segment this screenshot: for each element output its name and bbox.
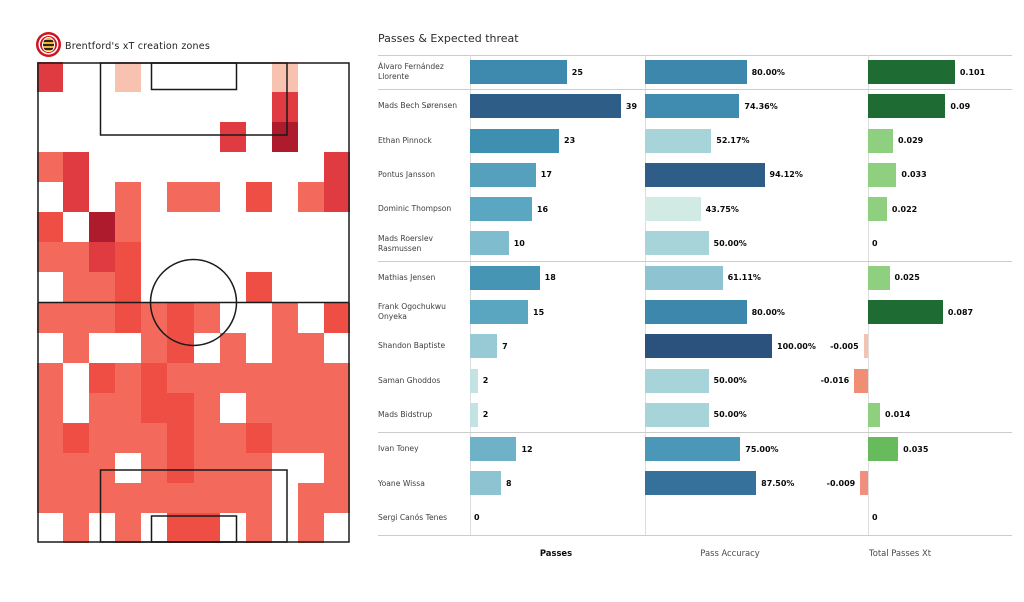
xt-value: 0.101 [960, 55, 985, 89]
accuracy-bar [645, 300, 747, 324]
footer-passes: Passes [540, 548, 572, 558]
passes-value: 10 [514, 226, 525, 260]
xt-bar [868, 437, 898, 461]
xt-value: 0.022 [892, 192, 917, 226]
football-pitch [37, 62, 350, 543]
xt-bar [868, 94, 945, 118]
xt-value: -0.009 [827, 466, 856, 500]
penalty-box-bottom [101, 470, 288, 542]
xt-bar [868, 266, 890, 290]
column-footers: Passes Pass Accuracy Total Passes Xt [378, 548, 1018, 564]
player-row: Mads Bech Sørensen3974.36%0.09 [378, 89, 1018, 123]
player-row: Yoane Wissa887.50%-0.009 [378, 466, 1018, 500]
player-row: Frank Ogochukwu Onyeka1580.00%0.087 [378, 295, 1018, 329]
player-row: Saman Ghoddos250.00%-0.016 [378, 364, 1018, 398]
xt-value: -0.005 [830, 329, 859, 363]
goal-box-bottom [152, 516, 237, 542]
accuracy-value: 75.00% [745, 432, 778, 466]
group-separator [378, 261, 1012, 262]
passes-bar [470, 471, 501, 495]
xt-value: 0.025 [895, 261, 920, 295]
passes-bar [470, 403, 478, 427]
stats-title: Passes & Expected threat [378, 32, 519, 45]
xt-value: 0.087 [948, 295, 973, 329]
passes-bar [470, 129, 559, 153]
group-separator [378, 432, 1012, 433]
xt-value: 0 [872, 501, 878, 535]
passes-value: 2 [483, 364, 489, 398]
player-name: Pontus Jansson [378, 158, 466, 192]
player-name: Shandon Baptiste [378, 329, 466, 363]
player-name: Saman Ghoddos [378, 364, 466, 398]
passes-value: 2 [483, 398, 489, 432]
xt-bar-negative [854, 369, 868, 393]
accuracy-bar [645, 471, 756, 495]
accuracy-value: 43.75% [706, 192, 739, 226]
player-name: Mads Bech Sørensen [378, 89, 466, 123]
xt-bar [868, 403, 880, 427]
xt-bar [868, 300, 943, 324]
bee-icon [42, 37, 55, 52]
accuracy-bar [645, 60, 747, 84]
accuracy-value: 74.36% [744, 89, 777, 123]
penalty-box-top [101, 63, 288, 135]
accuracy-bar [645, 197, 701, 221]
accuracy-value: 87.50% [761, 466, 794, 500]
passes-value: 17 [541, 158, 552, 192]
passes-bar [470, 369, 478, 393]
accuracy-value: 50.00% [714, 364, 747, 398]
player-row: Ivan Toney1275.00%0.035 [378, 432, 1018, 466]
passes-bar [470, 437, 516, 461]
xt-value: 0.09 [950, 89, 970, 123]
group-separator [378, 535, 1012, 536]
player-row: Shandon Baptiste7100.00%-0.005 [378, 329, 1018, 363]
passes-value: 0 [474, 501, 480, 535]
xt-value: -0.016 [821, 364, 850, 398]
passes-value: 12 [521, 432, 532, 466]
accuracy-bar [645, 437, 740, 461]
xt-value: 0 [872, 226, 878, 260]
accuracy-bar [645, 403, 709, 427]
player-name: Yoane Wissa [378, 466, 466, 500]
passes-value: 25 [572, 55, 583, 89]
accuracy-value: 61.11% [728, 261, 761, 295]
xt-value: 0.033 [901, 158, 926, 192]
footer-total-passes-xt: Total Passes Xt [869, 548, 931, 558]
accuracy-value: 50.00% [714, 226, 747, 260]
player-row: Álvaro Fernández Llorente2580.00%0.101 [378, 55, 1018, 89]
player-name: Mads Roerslev Rasmussen [378, 226, 466, 260]
xt-bar [868, 129, 893, 153]
accuracy-value: 50.00% [714, 398, 747, 432]
player-name: Ivan Toney [378, 432, 466, 466]
accuracy-value: 94.12% [770, 158, 803, 192]
xt-bar [868, 197, 887, 221]
accuracy-bar [645, 231, 709, 255]
accuracy-bar [645, 129, 711, 153]
passes-bar [470, 231, 509, 255]
accuracy-bar [645, 369, 709, 393]
player-name: Álvaro Fernández Llorente [378, 55, 466, 89]
accuracy-bar [645, 94, 739, 118]
xt-value: 0.035 [903, 432, 928, 466]
pitch-lines [37, 62, 350, 543]
accuracy-bar [645, 266, 723, 290]
accuracy-value: 80.00% [752, 55, 785, 89]
accuracy-value: 80.00% [752, 295, 785, 329]
player-row: Mads Bidstrup250.00%0.014 [378, 398, 1018, 432]
passes-bar [470, 60, 567, 84]
player-name: Mads Bidstrup [378, 398, 466, 432]
accuracy-value: 52.17% [716, 124, 749, 158]
passes-bar [470, 300, 528, 324]
passes-value: 16 [537, 192, 548, 226]
group-separator [378, 89, 1012, 90]
player-row: Mathias Jensen1861.11%0.025 [378, 261, 1018, 295]
player-row: Sergi Canós Tenes00 [378, 501, 1018, 535]
xt-value: 0.014 [885, 398, 910, 432]
pass-stats-panel: Passes & Expected threat Álvaro Fernánde… [378, 30, 1018, 590]
player-row: Ethan Pinnock2352.17%0.029 [378, 124, 1018, 158]
pitch-title: Brentford's xT creation zones [65, 41, 210, 52]
brentford-crest-icon [36, 32, 61, 57]
pitch-heatmap-panel: Brentford's xT creation zones [0, 0, 378, 602]
xt-bar [868, 60, 955, 84]
player-row: Dominic Thompson1643.75%0.022 [378, 192, 1018, 226]
passes-value: 18 [545, 261, 556, 295]
xt-bar-negative [864, 334, 868, 358]
player-name: Ethan Pinnock [378, 124, 466, 158]
player-name: Sergi Canós Tenes [378, 501, 466, 535]
player-row: Mads Roerslev Rasmussen1050.00%0 [378, 226, 1018, 260]
passes-value: 23 [564, 124, 575, 158]
analytics-figure: { "left_panel": { "title": "Brentford's … [0, 0, 1024, 602]
passes-value: 15 [533, 295, 544, 329]
accuracy-bar [645, 334, 772, 358]
player-row: Pontus Jansson1794.12%0.033 [378, 158, 1018, 192]
passes-value: 8 [506, 466, 512, 500]
player-rows: Álvaro Fernández Llorente2580.00%0.101Ma… [378, 55, 1018, 535]
footer-pass-accuracy: Pass Accuracy [700, 548, 759, 558]
passes-bar [470, 266, 540, 290]
passes-bar [470, 94, 621, 118]
goal-box-top [152, 63, 237, 90]
xt-value: 0.029 [898, 124, 923, 158]
passes-bar [470, 197, 532, 221]
player-name: Mathias Jensen [378, 261, 466, 295]
xt-bar-negative [860, 471, 868, 495]
passes-value: 7 [502, 329, 508, 363]
player-name: Frank Ogochukwu Onyeka [378, 295, 466, 329]
passes-bar [470, 334, 497, 358]
xt-bar [868, 163, 896, 187]
passes-value: 39 [626, 89, 637, 123]
player-name: Dominic Thompson [378, 192, 466, 226]
accuracy-bar [645, 163, 765, 187]
accuracy-value: 100.00% [777, 329, 816, 363]
passes-bar [470, 163, 536, 187]
